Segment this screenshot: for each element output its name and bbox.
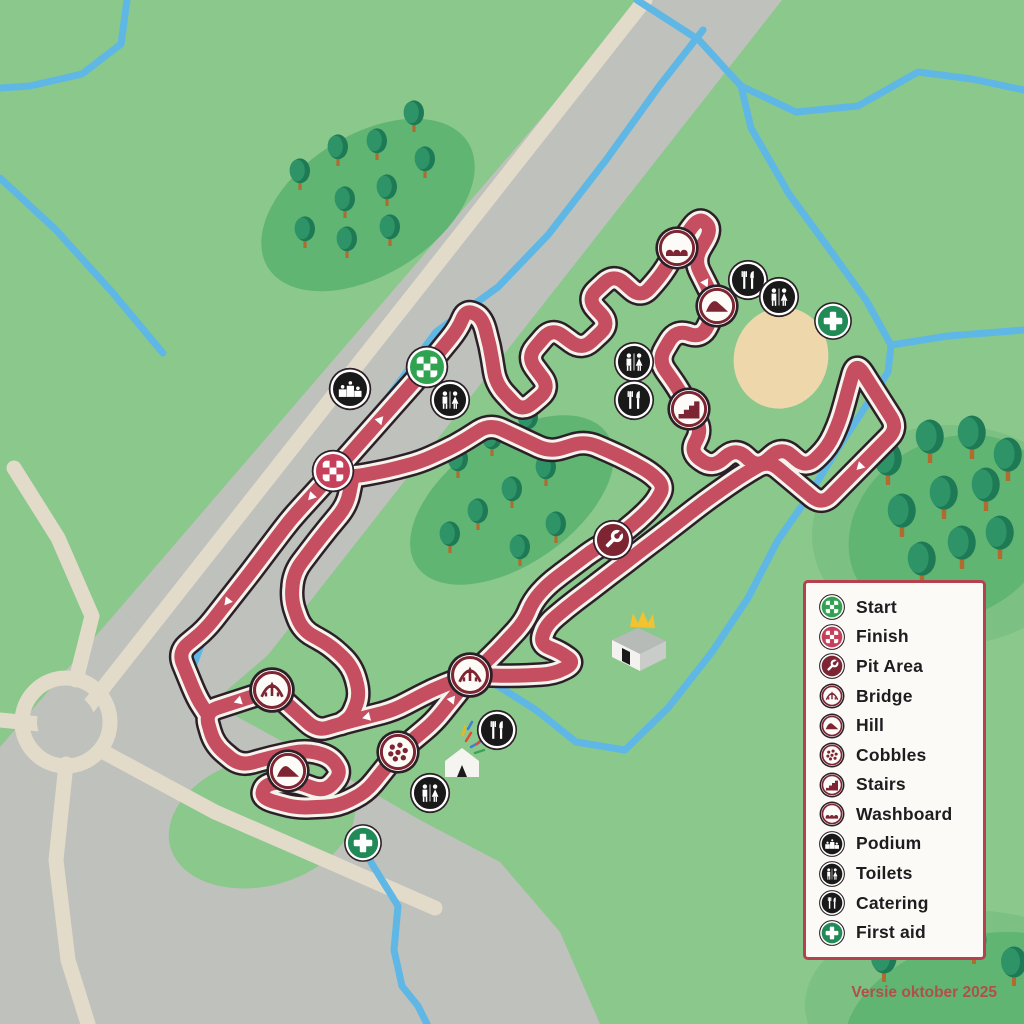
toilets-icon [759, 277, 799, 317]
legend-item-bridge: Bridge [818, 683, 971, 709]
first-aid-icon [814, 302, 852, 340]
stairs-icon [667, 387, 710, 430]
bridge-icon [820, 684, 845, 709]
catering-icon [818, 889, 846, 917]
version-label: Versie oktober 2025 [851, 984, 997, 1002]
legend-item-start: Start [818, 594, 971, 620]
washboard-icon [820, 802, 845, 827]
toilets-icon [430, 380, 470, 420]
cobbles-icon [820, 743, 845, 768]
roundabout-center [37, 693, 95, 751]
pit-area-icon [818, 652, 846, 680]
legend-item-label: Podium [856, 833, 921, 854]
cobbles-icon [818, 741, 846, 769]
legend-item-label: Stairs [856, 774, 906, 795]
legend-item-cobbles: Cobbles [818, 742, 971, 768]
legend-item-catering: Catering [818, 890, 971, 916]
legend-item-first-aid: First aid [818, 920, 971, 946]
first-aid-icon [818, 919, 846, 947]
toilets-icon [410, 773, 450, 813]
toilets-icon [818, 860, 846, 888]
catering-icon [819, 890, 845, 916]
legend-item-label: Finish [856, 626, 909, 647]
legend-item-hill: Hill [818, 713, 971, 739]
toilets-icon [819, 861, 845, 887]
toilets-icon [614, 342, 654, 382]
course-map-page: StartFinishPit AreaBridgeHillCobblesStai… [0, 0, 1024, 1024]
legend-item-stairs: Stairs [818, 772, 971, 798]
stairs-icon [820, 772, 845, 797]
finish-icon [818, 623, 846, 651]
finish-icon [819, 624, 845, 650]
legend-box: StartFinishPit AreaBridgeHillCobblesStai… [803, 580, 986, 960]
hill-icon [266, 749, 309, 792]
legend-item-label: Toilets [856, 863, 913, 884]
cobbles-icon [376, 730, 419, 773]
first-aid-icon [344, 824, 382, 862]
legend-item-pit-area: Pit Area [818, 653, 971, 679]
hill-icon [820, 713, 845, 738]
catering-icon [477, 710, 517, 750]
pit-icon [819, 653, 845, 679]
start-icon [819, 594, 845, 620]
start-icon [818, 593, 846, 621]
pit-icon [593, 520, 633, 560]
bridge-icon [447, 652, 493, 698]
washboard-icon [655, 226, 698, 269]
legend-item-label: Bridge [856, 686, 913, 707]
bridge-icon [249, 667, 295, 713]
finish-icon [312, 450, 355, 493]
legend-item-label: Cobbles [856, 745, 926, 766]
legend-item-label: Washboard [856, 804, 952, 825]
first-aid-icon [819, 920, 845, 946]
legend-item-label: Pit Area [856, 656, 923, 677]
podium-icon [819, 831, 845, 857]
legend-item-label: Hill [856, 715, 884, 736]
catering-icon [614, 380, 654, 420]
legend-item-toilets: Toilets [818, 861, 971, 887]
legend-item-label: First aid [856, 922, 926, 943]
stairs-icon [818, 771, 846, 799]
washboard-icon [818, 800, 846, 828]
legend-item-label: Start [856, 597, 897, 618]
legend-item-washboard: Washboard [818, 801, 971, 827]
bridge-icon [818, 682, 846, 710]
podium-icon [818, 830, 846, 858]
legend-item-finish: Finish [818, 624, 971, 650]
legend-item-podium: Podium [818, 831, 971, 857]
hill-icon [818, 712, 846, 740]
legend-item-label: Catering [856, 893, 929, 914]
podium-icon [329, 368, 372, 411]
